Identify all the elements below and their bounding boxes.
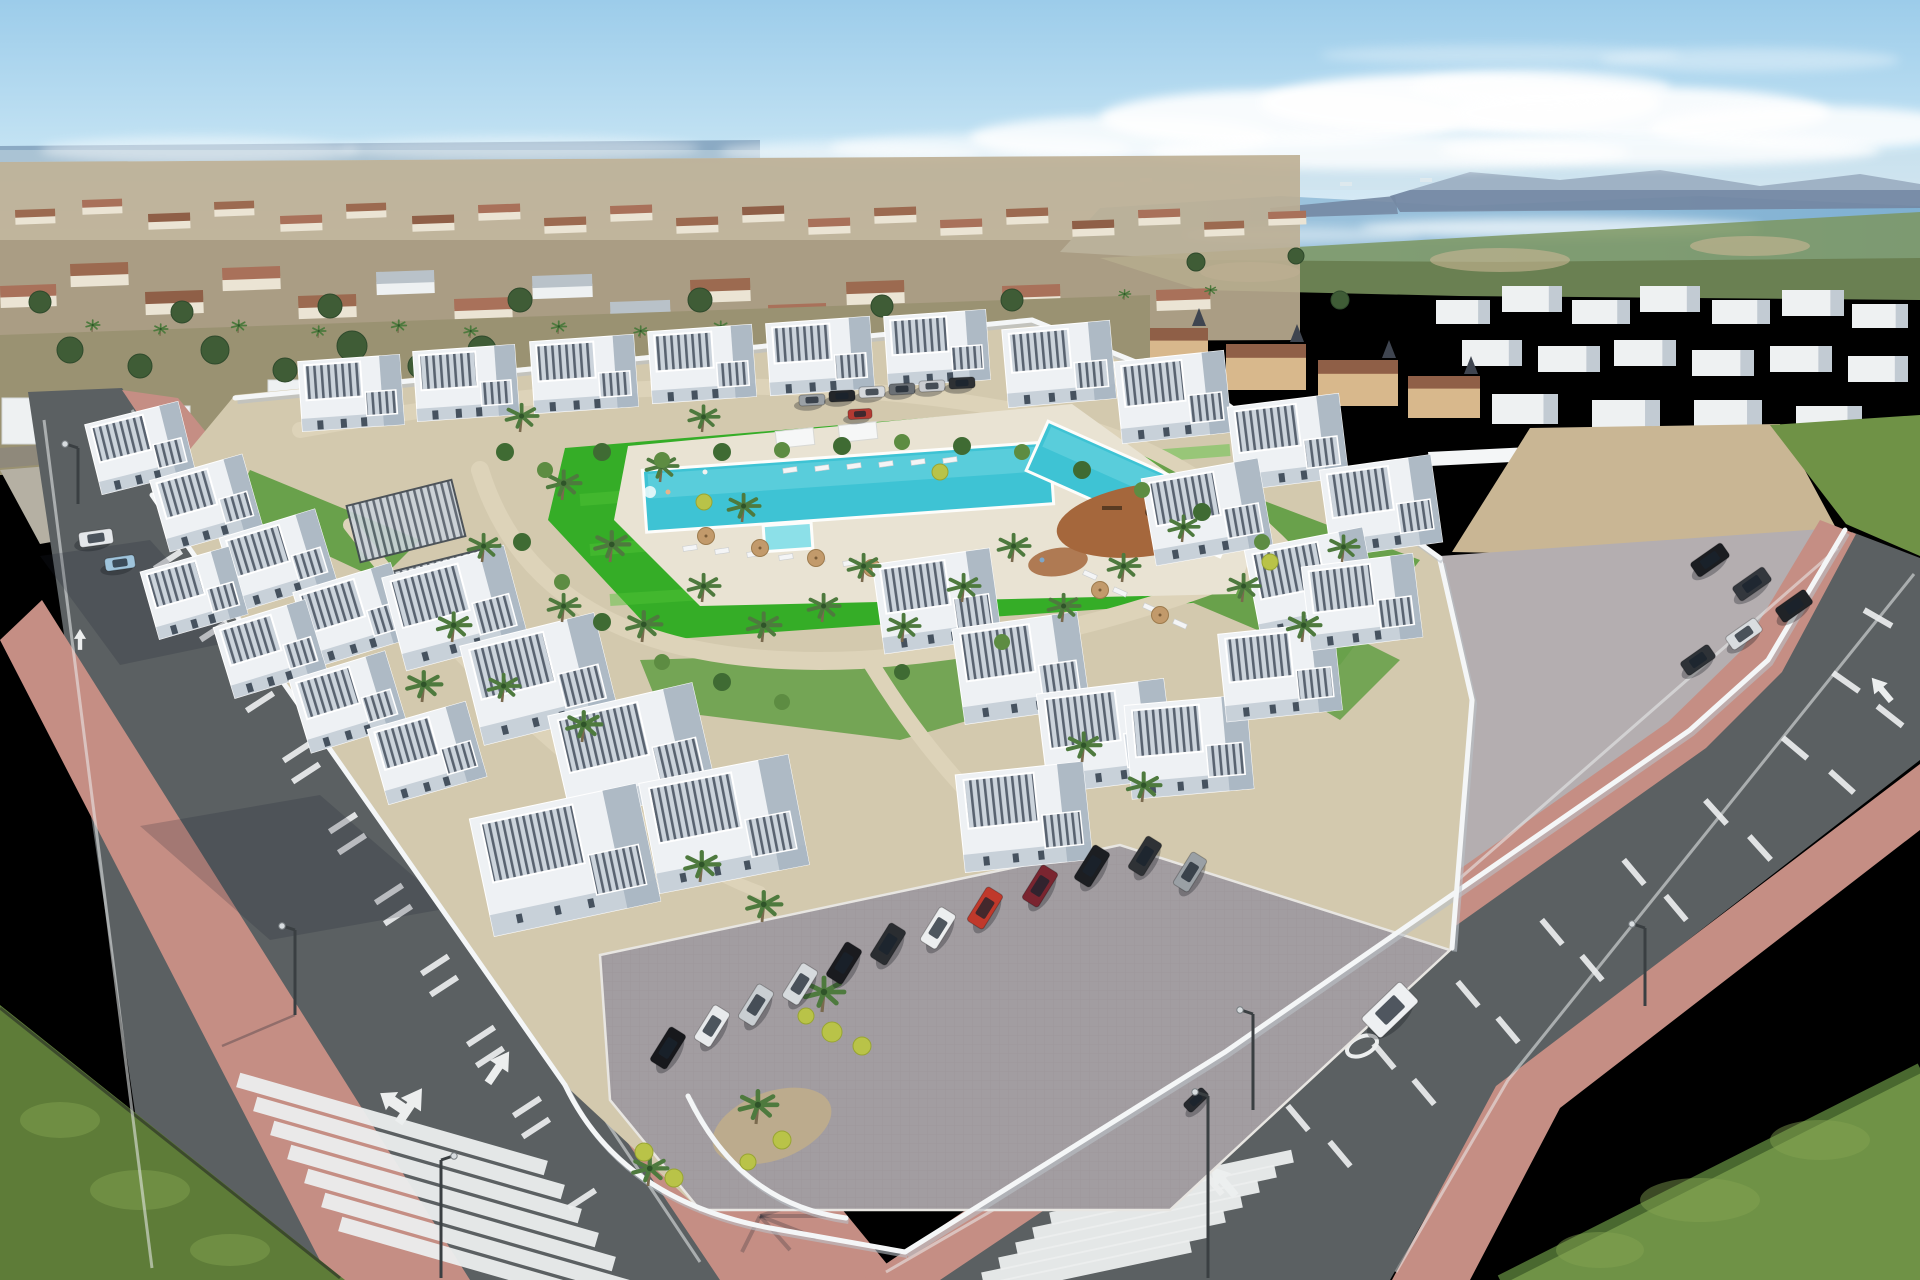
palm-crown (701, 583, 706, 588)
streetlight-lamp (1192, 1089, 1198, 1095)
field-patch (1430, 248, 1570, 272)
streetlight-lamp (451, 1153, 457, 1159)
roof-pergola (960, 624, 1035, 681)
roof-pergola (963, 773, 1038, 829)
window (667, 392, 674, 401)
car-windows (865, 388, 878, 395)
palm-crown (755, 1102, 761, 1108)
palm-crown (318, 330, 320, 332)
bush (894, 434, 910, 450)
town-house (70, 262, 129, 287)
cloud (1440, 134, 1880, 166)
window (1327, 636, 1334, 646)
palm-crown (238, 324, 240, 326)
bush (554, 574, 570, 590)
town-house (532, 274, 593, 299)
roof-pergola-small (480, 380, 512, 406)
roof-pergola (1225, 632, 1293, 682)
town-house-roof (544, 217, 586, 227)
roof-pergola (419, 351, 477, 390)
yellow-bush (853, 1037, 871, 1055)
tan-house-roof (1226, 344, 1306, 358)
bush (654, 452, 670, 468)
window (573, 400, 580, 409)
window (1177, 781, 1184, 790)
yellow-bush (822, 1022, 842, 1042)
car-windows (835, 392, 848, 399)
palm-crown (1181, 524, 1186, 529)
window (317, 420, 324, 429)
roof-pergola-small (951, 345, 983, 371)
white-house-shade (1478, 300, 1490, 324)
palm-crown (821, 989, 827, 995)
window (341, 419, 348, 428)
tree (871, 295, 893, 317)
roof-pergola (536, 342, 596, 382)
yellow-bush (740, 1154, 756, 1170)
roof-pergola-small (717, 361, 750, 388)
white-house-shade (1687, 286, 1700, 312)
palm-crown (519, 413, 524, 418)
field-patch (1690, 236, 1810, 256)
window (809, 382, 816, 391)
town-house (1006, 208, 1049, 225)
town-house-roof (214, 201, 254, 210)
palm-crown (1301, 623, 1306, 628)
scene-canvas (0, 0, 1920, 1280)
town-house-roof (478, 204, 520, 214)
town-house (940, 219, 983, 236)
roof-pergola (880, 560, 951, 614)
window (1138, 430, 1145, 440)
streetlight-lamp (1629, 921, 1635, 927)
palm-crown (558, 325, 560, 327)
town-house-roof (1138, 209, 1180, 219)
palm-crown (92, 324, 94, 326)
roof-pergola (1121, 360, 1185, 407)
window (982, 708, 989, 718)
bush (593, 613, 611, 631)
white-house-shade (1830, 290, 1844, 316)
bush (1134, 482, 1150, 498)
palm-crown (961, 583, 966, 588)
town-house (874, 207, 917, 224)
town-house (412, 215, 455, 232)
window (361, 417, 368, 426)
bush (894, 664, 910, 680)
town-house (214, 201, 254, 217)
bush (496, 443, 514, 461)
palm-crown (561, 481, 566, 486)
person (666, 490, 671, 495)
palm-crown (470, 330, 472, 332)
town-house-roof (222, 266, 280, 280)
town-house (1138, 209, 1181, 226)
bush (1073, 461, 1091, 479)
roof-pergola (890, 316, 948, 355)
palm-crown (701, 414, 706, 419)
window (1024, 395, 1031, 404)
tree (508, 288, 532, 312)
town-house-roof (532, 274, 592, 288)
streetlight-lamp (1237, 1007, 1243, 1013)
palm-crown (398, 324, 400, 326)
tree (29, 291, 51, 313)
roof-pergola (1132, 705, 1203, 758)
window (549, 402, 556, 411)
palm-crown (901, 623, 906, 628)
tree (171, 301, 193, 323)
town-house-roof (70, 262, 128, 276)
roof-pergola-small (1074, 360, 1109, 389)
apartment-block (955, 762, 1093, 873)
roof-pergola (772, 324, 832, 364)
parasol-pole (759, 547, 762, 550)
white-house-shade (1818, 346, 1832, 372)
white-house-shade (1543, 394, 1558, 424)
bush (1014, 444, 1030, 460)
white-house-shade (1509, 340, 1522, 366)
town-house-roof (145, 290, 203, 304)
palm-crown (160, 328, 162, 330)
tree (201, 336, 229, 364)
palm-crown (1141, 783, 1146, 788)
cloud (1410, 70, 1670, 106)
palm-crown (421, 682, 427, 688)
town-house (1204, 221, 1244, 237)
town-house (742, 206, 785, 223)
window (830, 381, 837, 390)
bush (994, 634, 1010, 650)
roof-pergola-small (1296, 667, 1334, 700)
parasol-pole (705, 535, 708, 538)
parasol-pole (1159, 614, 1162, 617)
window (1163, 427, 1170, 437)
palm-crown (501, 683, 506, 688)
palm-crown (861, 563, 866, 568)
town-house-roof (610, 300, 670, 314)
yellow-bush (798, 1008, 814, 1024)
tree (273, 358, 297, 382)
yellow-bush (1262, 554, 1278, 570)
town-house (1156, 288, 1211, 311)
parasol-pole (815, 557, 818, 560)
window (712, 389, 719, 398)
town-house (808, 218, 851, 235)
bush (1254, 534, 1270, 550)
town-house-roof (610, 205, 652, 215)
roof-pergola-small (953, 594, 992, 629)
town-house-roof (280, 215, 322, 225)
window (1352, 633, 1359, 643)
tan-house-roof (1408, 376, 1480, 389)
window (1038, 850, 1045, 860)
bush (713, 673, 731, 691)
window (1269, 704, 1276, 714)
tree (337, 331, 367, 361)
bush (1193, 503, 1211, 521)
tree (1001, 289, 1023, 311)
field-mottle (1640, 1178, 1760, 1222)
palm-crown (481, 543, 486, 548)
white-house-shade (1645, 400, 1660, 430)
town-house-roof (846, 280, 904, 294)
roof-pergola-small (599, 371, 632, 398)
town-house (280, 215, 323, 232)
palm-crown (609, 542, 615, 548)
town-house-roof (940, 219, 982, 229)
palm-crown (1011, 543, 1016, 548)
town-house (676, 217, 719, 234)
town-house-roof (676, 217, 718, 227)
apartment-block (1114, 350, 1232, 443)
town-house (478, 204, 521, 221)
window (1049, 393, 1056, 402)
town-house-roof (1268, 211, 1306, 219)
white-house-shade (1586, 346, 1600, 372)
town-house-roof (1006, 208, 1048, 218)
window (456, 409, 463, 418)
palm-crown (561, 603, 566, 608)
streetlight-lamp (279, 923, 285, 929)
town-house (1072, 220, 1115, 237)
town-house-roof (808, 218, 850, 228)
tree (688, 288, 712, 312)
town-house-roof (1204, 221, 1244, 230)
town-house-roof (412, 215, 454, 225)
yellow-bush (773, 1131, 791, 1149)
palm-crown (451, 623, 456, 628)
roof-pergola-small (1042, 811, 1084, 848)
town-house (544, 217, 587, 234)
roof-pergola-small (1304, 436, 1341, 468)
town-house-roof (148, 213, 190, 223)
apartment-block (413, 345, 520, 422)
tree (128, 354, 152, 378)
field-mottle (20, 1102, 100, 1138)
tower-roof (1382, 340, 1396, 358)
white-house-shade (1549, 286, 1562, 312)
window (594, 399, 601, 408)
car-windows (805, 396, 818, 403)
palm-crown (741, 503, 746, 508)
roof-pergola (654, 332, 714, 372)
tan-house-roof (1318, 360, 1398, 374)
town-house-roof (15, 209, 55, 218)
window (1011, 703, 1018, 713)
window (1202, 779, 1209, 788)
roof-pergola-small (365, 390, 397, 416)
town-house-roof (874, 207, 916, 217)
apartment-block (298, 355, 405, 432)
window (1070, 391, 1077, 400)
cloud (40, 136, 360, 164)
tree (318, 294, 342, 318)
roof-pergola-small (745, 811, 797, 857)
window (1301, 470, 1308, 480)
window (1095, 773, 1102, 783)
town-house-roof (1156, 288, 1210, 301)
window (476, 407, 483, 416)
town-house-roof (376, 270, 434, 284)
field-mottle (1770, 1120, 1870, 1160)
roof-pergola (1235, 404, 1301, 453)
town-house-roof (346, 203, 386, 212)
person (703, 470, 708, 475)
town-house-roof (454, 297, 512, 311)
white-house-shade (1662, 340, 1676, 366)
yellow-bush (635, 1143, 653, 1161)
town-house (222, 266, 281, 291)
window (1278, 473, 1285, 483)
town-house (82, 199, 122, 215)
white-house-shade (1895, 356, 1908, 382)
palm-crown (761, 623, 766, 628)
roof-pergola (304, 361, 362, 400)
palm-crown (1121, 563, 1126, 568)
window (1243, 707, 1250, 717)
roof-pergola (1327, 466, 1394, 518)
cloud (340, 136, 700, 160)
roof-pergola-small (1378, 596, 1415, 628)
roof-pergola-small (1188, 392, 1224, 423)
town-house (610, 205, 653, 222)
palm-crown (1124, 293, 1126, 295)
town-house (15, 209, 55, 225)
tree (1331, 291, 1349, 309)
tree (57, 337, 83, 363)
palm-crown (1210, 289, 1212, 291)
window (1185, 425, 1192, 435)
window (785, 384, 792, 393)
white-house-shade (1740, 350, 1754, 376)
window (983, 856, 990, 866)
streetlight-lamp (62, 441, 68, 447)
window (1375, 630, 1382, 640)
car-windows (925, 382, 938, 389)
bush (593, 443, 611, 461)
bush (774, 694, 790, 710)
town-house-roof (742, 206, 784, 216)
white-house-shade (1757, 300, 1770, 324)
town-house (148, 213, 191, 230)
town-house-roof (1072, 220, 1114, 230)
window (927, 634, 934, 644)
window (1372, 538, 1379, 548)
white-house-shade (1896, 304, 1908, 328)
play-equipment (1102, 506, 1122, 510)
window (1121, 770, 1128, 780)
town-house (376, 270, 435, 295)
palm-crown (1341, 544, 1346, 549)
roof-pergola-small (835, 353, 868, 380)
roof-pergola (1009, 329, 1072, 373)
car-windows (955, 379, 968, 386)
palm-crown (581, 722, 587, 728)
white-house-shade (1617, 300, 1630, 324)
pool-steps (644, 486, 656, 498)
palm-crown (640, 330, 642, 332)
palm-crown (647, 1166, 653, 1172)
bush (774, 442, 790, 458)
bush (833, 437, 851, 455)
window (691, 390, 698, 399)
roof-pergola-small (1223, 503, 1263, 539)
palm-crown (821, 603, 826, 608)
apartment-block (766, 316, 875, 395)
palm-crown (1061, 603, 1066, 608)
person (1040, 558, 1045, 563)
bush (654, 654, 670, 670)
window (1012, 853, 1019, 863)
window (432, 410, 439, 419)
roof-pergola-small (1206, 742, 1245, 777)
apartment-block (530, 334, 639, 413)
window (1293, 702, 1300, 712)
field-mottle (1556, 1232, 1644, 1268)
window (1394, 535, 1401, 545)
tree (1288, 248, 1304, 264)
bush (537, 462, 553, 478)
palm-crown (1241, 583, 1246, 588)
parasol-pole (1099, 589, 1102, 592)
yellow-bush (932, 464, 948, 480)
car-windows (895, 385, 908, 392)
roof-pergola (1309, 564, 1375, 613)
bush (953, 437, 971, 455)
apartment-block (648, 324, 757, 403)
town-house-roof (82, 199, 122, 208)
bush (513, 533, 531, 551)
car-windows (854, 411, 866, 418)
apartment-block (1301, 553, 1422, 650)
roof-pergola-small (1397, 499, 1434, 533)
tree (1187, 253, 1205, 271)
apartment-block (884, 310, 991, 387)
yellow-bush (665, 1169, 683, 1187)
apartment-block (1002, 320, 1116, 407)
palm-crown (699, 862, 705, 868)
town-house (1268, 211, 1306, 226)
palm-crown (641, 622, 647, 628)
town-house (346, 203, 386, 219)
aerial-photo-residential-complex (0, 0, 1920, 1280)
field-mottle (190, 1234, 270, 1266)
bush (713, 443, 731, 461)
yellow-bush (696, 494, 712, 510)
cloud (1320, 45, 1680, 65)
palm-crown (1081, 743, 1086, 748)
palm-crown (761, 902, 767, 908)
